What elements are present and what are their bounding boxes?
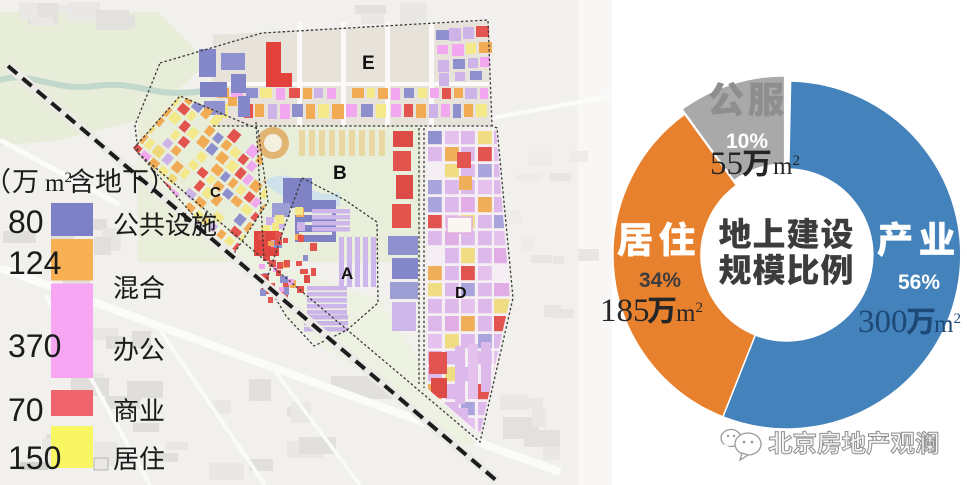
svg-text:B: B: [333, 163, 347, 184]
svg-text:124: 124: [8, 245, 61, 281]
svg-text:55: 55: [710, 146, 743, 182]
svg-text:m2: m2: [773, 153, 800, 180]
svg-text:E: E: [362, 53, 375, 74]
svg-text:34%: 34%: [639, 269, 681, 292]
svg-text:185: 185: [600, 293, 650, 329]
svg-text:C: C: [210, 184, 221, 201]
svg-text:80: 80: [8, 204, 44, 240]
svg-text:D: D: [455, 285, 467, 302]
svg-text:150: 150: [8, 440, 61, 476]
svg-text:370: 370: [8, 328, 61, 364]
svg-text:56%: 56%: [898, 271, 940, 294]
svg-text:A: A: [341, 264, 353, 283]
svg-text:300: 300: [858, 304, 908, 340]
svg-text:70: 70: [8, 392, 44, 428]
svg-text:m2: m2: [934, 311, 961, 338]
